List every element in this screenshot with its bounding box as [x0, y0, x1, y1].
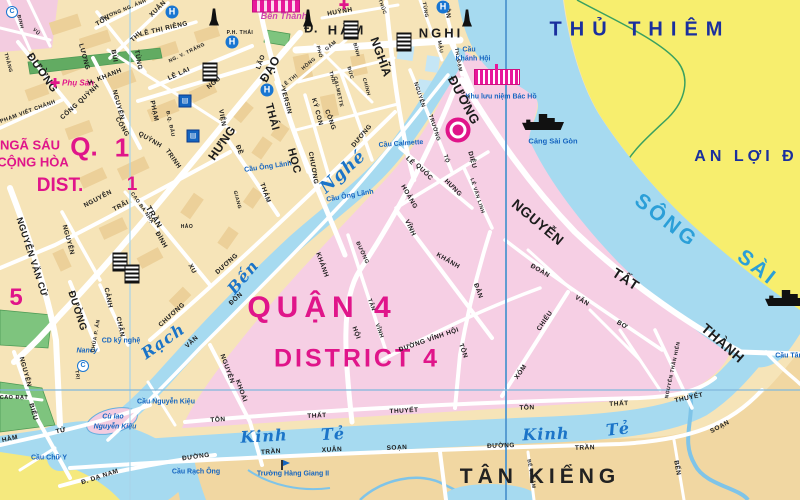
street-label: LƯƠNG [77, 43, 91, 71]
street-label: NGUYỄN [61, 224, 76, 256]
street-label: SOẠN [386, 444, 407, 452]
street-label: LÊ LAI [167, 66, 191, 82]
street-label: HOÀNG [399, 184, 418, 211]
street-label: CÔNG [323, 109, 337, 132]
street-label: TÔN [457, 343, 469, 360]
hospital-icon: H [437, 1, 450, 14]
street-label: ĐẢN [472, 282, 484, 299]
street-label: TRẦN [575, 444, 595, 452]
street-label: CALMETTE [332, 76, 344, 108]
bridge-label: Cầu Tân [775, 353, 800, 360]
monument-icon [462, 10, 472, 27]
area-label-tan-kieng: TÂN KIỂNG [460, 465, 621, 489]
street-label: DƯƠNG [350, 123, 373, 149]
street-label: THUYẾT [674, 392, 704, 405]
school-icon: ▤ [179, 95, 192, 108]
street-label: ĐƯỜNG [65, 290, 88, 333]
street-label: SƯƠNG NG. ÁNH [101, 0, 148, 22]
building-icon [203, 63, 218, 82]
street-label: PHÓ [315, 45, 324, 58]
street-label: HƯNG [205, 123, 239, 163]
cross-icon: ✚ [50, 77, 60, 89]
song-sai-gon-label: SÔNG [630, 189, 703, 253]
street-label: ĐƯỜNG [182, 452, 211, 463]
street-label: TRƯỜNG [427, 114, 441, 142]
kinh-te-label: Kinh [240, 425, 288, 446]
street-label: HÀM [1, 434, 18, 444]
street-label: THẲNG [2, 52, 13, 73]
school-label: Trường Hàng Giang II [257, 471, 329, 478]
street-label: CHÍNH [361, 77, 372, 96]
market-icon [252, 0, 300, 13]
street-label: XUÂN [322, 446, 343, 454]
ring-icon [446, 118, 471, 143]
district-4-subtitle: DISTRICT 4 [274, 345, 440, 374]
street-label: THẤT [307, 412, 327, 420]
cdiamond-icon: C [6, 6, 18, 18]
street-label: ĐINH [15, 14, 24, 29]
street-label: CỐNG QUỲNH [59, 83, 101, 122]
street-label: TRINH [164, 148, 183, 170]
street-label: KHÁNH [435, 251, 461, 270]
nguyen-tat-thanh-label: NGUYỄN [509, 196, 567, 249]
cdiamond-icon: C [77, 360, 89, 372]
cong-hoa-label: CỘNG HÒA [0, 155, 69, 170]
street-label: MẬU [436, 40, 444, 54]
street-label: TÙNG [133, 49, 143, 70]
street-label: NGUYỄN THẦN HIẾN [664, 341, 682, 399]
street-label: PHẠM [148, 100, 159, 122]
street-label: CHIẾU [536, 310, 555, 333]
street-label: LÊ THỊ RIÊNG [139, 20, 188, 38]
street-label: HỒNG [301, 56, 318, 72]
cross-icon: ✚ [339, 0, 349, 11]
street-label: THÁI [263, 102, 282, 132]
street-label: HƯNG [443, 178, 463, 198]
building-icon [397, 33, 412, 52]
ship-icon [765, 290, 800, 306]
song-sai-gon-label: SÀI [732, 245, 781, 291]
street-label: VĂN [574, 294, 591, 308]
street-label: ĐỨC [345, 66, 354, 80]
hospital-icon: H [226, 36, 239, 49]
street-label: BIỂU [27, 403, 38, 422]
city-map: THỦ THIÊM AN LỢI Đ QUẬN 4 DISTRICT 4 NGÃ… [0, 0, 800, 500]
street-label: YERSIN [279, 87, 293, 115]
kinh-te-label: Kinh [522, 424, 570, 445]
kinh-te-label: Tẻ [320, 424, 345, 444]
street-label: QUỐC [414, 162, 434, 182]
street-label: VĨNH [374, 323, 385, 339]
street-label: LÊ VĂN LINH [468, 178, 485, 215]
street-label: SOẠN [709, 419, 731, 435]
street-label: CẢNH [102, 287, 113, 309]
street-label: NG. V. TRÁNG [168, 42, 206, 65]
street-label: THÚC [376, 0, 387, 15]
street-label: TỬ [55, 426, 67, 435]
ship-icon [522, 114, 564, 130]
street-label: PHẠM VIẾT CHÁNH [0, 99, 57, 125]
flag-icon [281, 460, 283, 470]
street-label: CAO ĐẠT [0, 395, 28, 401]
label-layer: THỦ THIÊM AN LỢI Đ QUẬN 4 DISTRICT 4 NGÃ… [0, 0, 800, 500]
street-label: LÊ THỊ [281, 73, 299, 90]
bridge-label: Cầu Calmette [378, 139, 423, 149]
school-icon: ▤ [187, 130, 200, 143]
ben-thanh-market-label: Bến Thành [261, 11, 308, 21]
street-label: Đ. DẠ NAM [80, 468, 119, 487]
port-label: Cảng Sài Gòn [528, 137, 577, 146]
memorial-label: Khu lưu niệm Bác Hồ [465, 94, 536, 101]
district-5-number: 5 [9, 284, 22, 312]
street-label: ĐỀ [234, 144, 244, 156]
street-label: H. KHANH [87, 67, 123, 87]
street-label: HẢO [181, 224, 194, 230]
street-label: TÔN [519, 404, 534, 412]
college-label: CD kỹ nghệ [102, 338, 141, 345]
bridge-label: Cầu Rạch Ông [172, 469, 220, 476]
hospital-icon: H [166, 6, 179, 19]
street-label: DIỆU [466, 151, 477, 170]
district-1-dist: DIST. [37, 175, 83, 197]
street-label: GẤM [324, 39, 338, 52]
street-label: TÔN [210, 416, 226, 424]
street-label: ĐOÀN [529, 263, 551, 280]
street-label: ĐƯỜNG [354, 241, 370, 265]
street-label: CHƯƠNG [307, 151, 320, 185]
street-label: NGHĨA [367, 35, 394, 78]
memorial-icon [474, 69, 520, 85]
street-label: GIANG [232, 190, 243, 210]
bridge-label: Cầu [462, 47, 475, 54]
street-label: BẾN [672, 460, 682, 476]
street-label: ĐƯỜNG [487, 442, 515, 450]
street-label: Đ.Q. ĐẨU [164, 110, 175, 137]
street-label: ĐÌNH [153, 231, 168, 250]
street-label: VĨNH [403, 219, 417, 238]
street-label: NGUYỄN [412, 81, 426, 108]
street-label: NGUYỄN [18, 356, 33, 388]
street-label: CHÙA P. ẤN [90, 319, 102, 353]
area-label-thu-thiem: THỦ THIÊM [550, 19, 731, 42]
nguyen-tat-thanh-label: TẤT [610, 264, 643, 293]
street-label: BÌNH [351, 42, 360, 57]
building-icon [125, 265, 140, 284]
street-label: THUYẾT [389, 407, 418, 416]
street-label: CHÂN [114, 316, 125, 338]
street-label: THẤT [609, 400, 629, 408]
area-label-an-loi: AN LỢI Đ [694, 148, 797, 166]
street-label: BƠ [615, 319, 628, 331]
street-label: ĐỒN [228, 291, 245, 307]
street-label: NGUYỄN [83, 189, 113, 210]
nguyen-tat-thanh-label: THÀNH [698, 320, 747, 366]
street-label: NGHI [419, 26, 464, 41]
bridge-label: Cầu Ông Lãnh [244, 160, 292, 174]
street-label: NGUYỄN [218, 353, 235, 384]
district-1-q-num: 1 [115, 133, 129, 164]
bridge-label: Cầu Nguyễn Kiệu [137, 399, 195, 406]
bridge-label: Cầu Chữ Y [31, 455, 67, 462]
island-label: Cù lao [102, 414, 123, 421]
street-label: THÁM [258, 182, 272, 204]
island-label: Nguyễn Kiệu [94, 424, 137, 431]
street-label: HỌC [285, 147, 303, 175]
hospital-icon: H [261, 84, 274, 97]
street-label: KHOÁI [234, 379, 249, 403]
street-label: TRẦN [261, 448, 282, 456]
street-label: XU [186, 263, 197, 275]
street-label: HỘI [350, 326, 361, 341]
street-label: TRÃI [112, 199, 130, 213]
building-icon [344, 21, 359, 40]
street-label: KHÁNH [314, 252, 329, 279]
district-1-q: Q. [70, 132, 97, 163]
street-label: TÙNG [421, 2, 430, 19]
street-label: VŨ [31, 27, 41, 37]
kinh-te-label: Tẻ [605, 418, 631, 439]
street-label: QUỲNH [137, 130, 163, 149]
street-label: XÓM [513, 363, 528, 380]
street-label: VÂN [184, 334, 200, 349]
street-label: KÝ CON [310, 97, 324, 126]
street-label: TỘ [442, 154, 450, 164]
monument-icon [209, 9, 219, 26]
street-label: BÙI [109, 49, 118, 63]
nga-sau-label: NGÃ SÁU [0, 138, 60, 153]
